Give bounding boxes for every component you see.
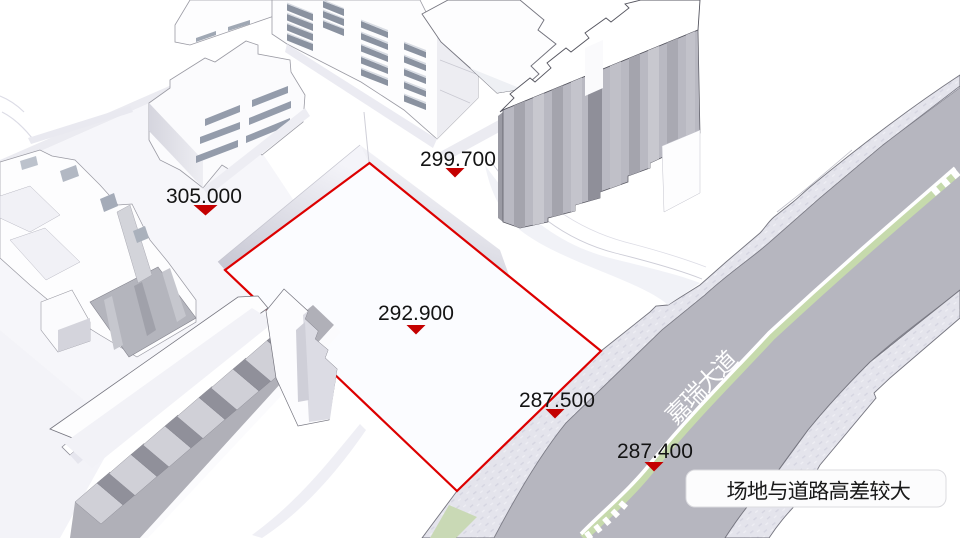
- svg-text:305.000: 305.000: [166, 185, 242, 208]
- svg-text:292.900: 292.900: [378, 302, 454, 325]
- svg-text:287.400: 287.400: [617, 440, 693, 463]
- svg-text:299.700: 299.700: [420, 148, 496, 171]
- svg-text:287.500: 287.500: [519, 389, 595, 412]
